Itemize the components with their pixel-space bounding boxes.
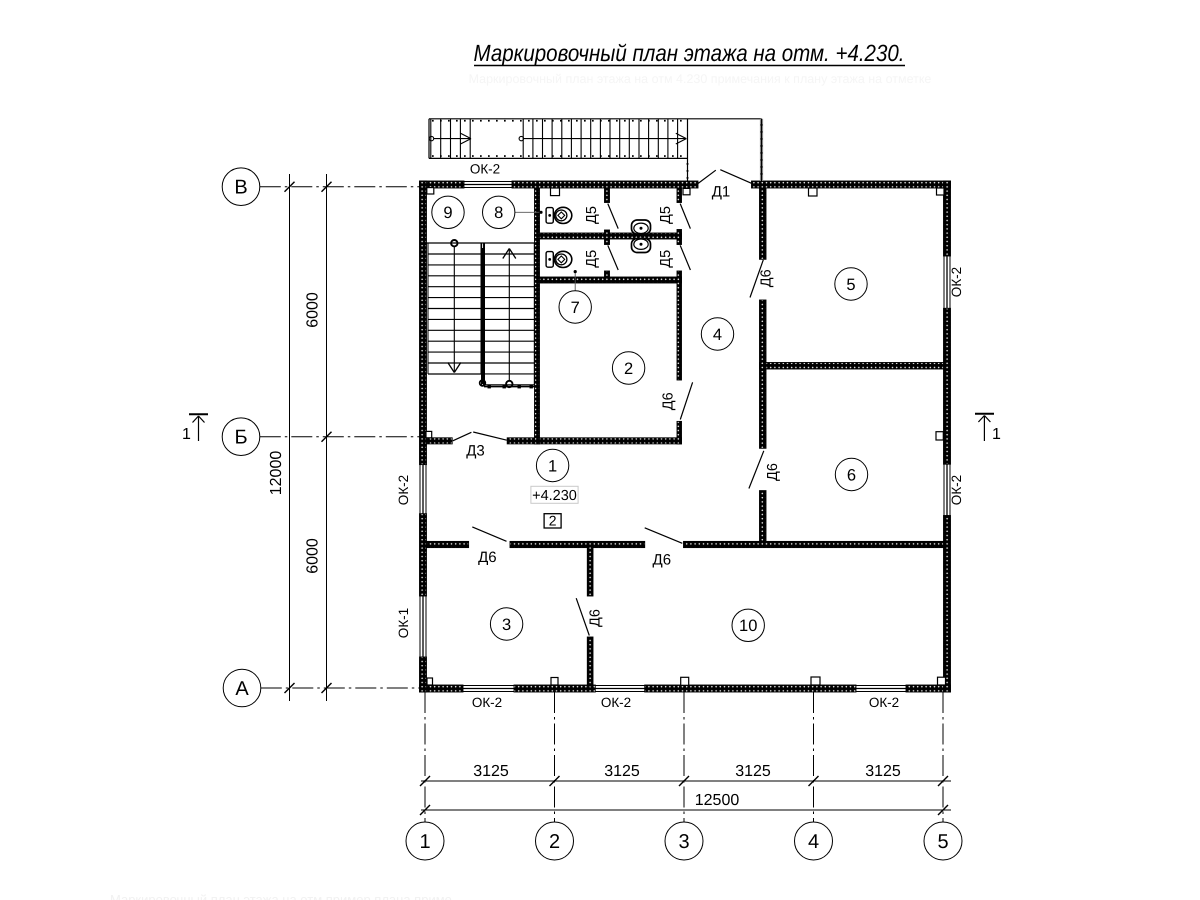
svg-text:Маркировочный план этажа на от: Маркировочный план этажа на отм пример п… — [110, 892, 452, 900]
svg-text:+4.230: +4.230 — [532, 488, 577, 504]
svg-text:5: 5 — [846, 276, 855, 294]
svg-text:Д5: Д5 — [584, 206, 600, 224]
svg-text:Д6: Д6 — [478, 549, 497, 566]
svg-text:6: 6 — [847, 466, 856, 484]
svg-text:Маркировочный план этажа на от: Маркировочный план этажа на отм. +4.230. — [474, 40, 905, 66]
svg-text:Д6: Д6 — [759, 269, 775, 287]
svg-text:Д6: Д6 — [765, 463, 781, 481]
svg-text:Д1: Д1 — [712, 184, 731, 201]
svg-text:Д6: Д6 — [653, 552, 672, 569]
svg-text:10: 10 — [739, 617, 757, 635]
svg-text:8: 8 — [494, 204, 503, 222]
svg-text:1: 1 — [182, 426, 191, 443]
svg-text:Д3: Д3 — [466, 442, 485, 459]
svg-text:2: 2 — [549, 831, 560, 853]
svg-text:ОК-2: ОК-2 — [601, 695, 631, 710]
svg-text:3125: 3125 — [865, 763, 901, 780]
svg-text:А: А — [235, 678, 249, 700]
svg-text:4: 4 — [808, 831, 819, 853]
svg-text:2: 2 — [624, 360, 633, 378]
svg-text:Д5: Д5 — [658, 206, 674, 224]
svg-text:Д6: Д6 — [660, 392, 676, 410]
svg-text:5: 5 — [937, 831, 948, 853]
svg-text:1: 1 — [548, 457, 557, 475]
svg-text:3: 3 — [502, 616, 511, 634]
svg-text:12500: 12500 — [695, 792, 740, 809]
svg-text:6000: 6000 — [305, 292, 322, 328]
svg-text:ОК-2: ОК-2 — [949, 267, 964, 297]
svg-text:Д5: Д5 — [658, 250, 674, 268]
svg-text:Б: Б — [234, 427, 247, 449]
svg-text:ОК-2: ОК-2 — [472, 695, 502, 710]
svg-text:ОК-2: ОК-2 — [470, 162, 500, 177]
svg-text:ОК-2: ОК-2 — [869, 695, 899, 710]
svg-text:3125: 3125 — [473, 763, 509, 780]
svg-text:ОК-2: ОК-2 — [396, 475, 411, 505]
svg-text:Маркировочный план этажа на от: Маркировочный план этажа на отм 4.230 пр… — [469, 72, 932, 86]
svg-text:3: 3 — [678, 831, 689, 853]
svg-text:2: 2 — [549, 512, 557, 528]
svg-text:7: 7 — [571, 299, 580, 317]
svg-text:1: 1 — [992, 426, 1001, 443]
svg-text:Д6: Д6 — [588, 609, 604, 627]
svg-text:3125: 3125 — [604, 763, 640, 780]
svg-text:1: 1 — [419, 831, 430, 853]
svg-text:В: В — [234, 177, 247, 199]
svg-text:9: 9 — [443, 204, 452, 222]
svg-text:6000: 6000 — [305, 538, 322, 574]
svg-text:12000: 12000 — [268, 451, 285, 496]
svg-text:4: 4 — [713, 326, 722, 344]
svg-text:3125: 3125 — [735, 763, 771, 780]
svg-text:ОК-2: ОК-2 — [949, 475, 964, 505]
svg-text:Д5: Д5 — [584, 250, 600, 268]
svg-text:ОК-1: ОК-1 — [396, 608, 411, 638]
